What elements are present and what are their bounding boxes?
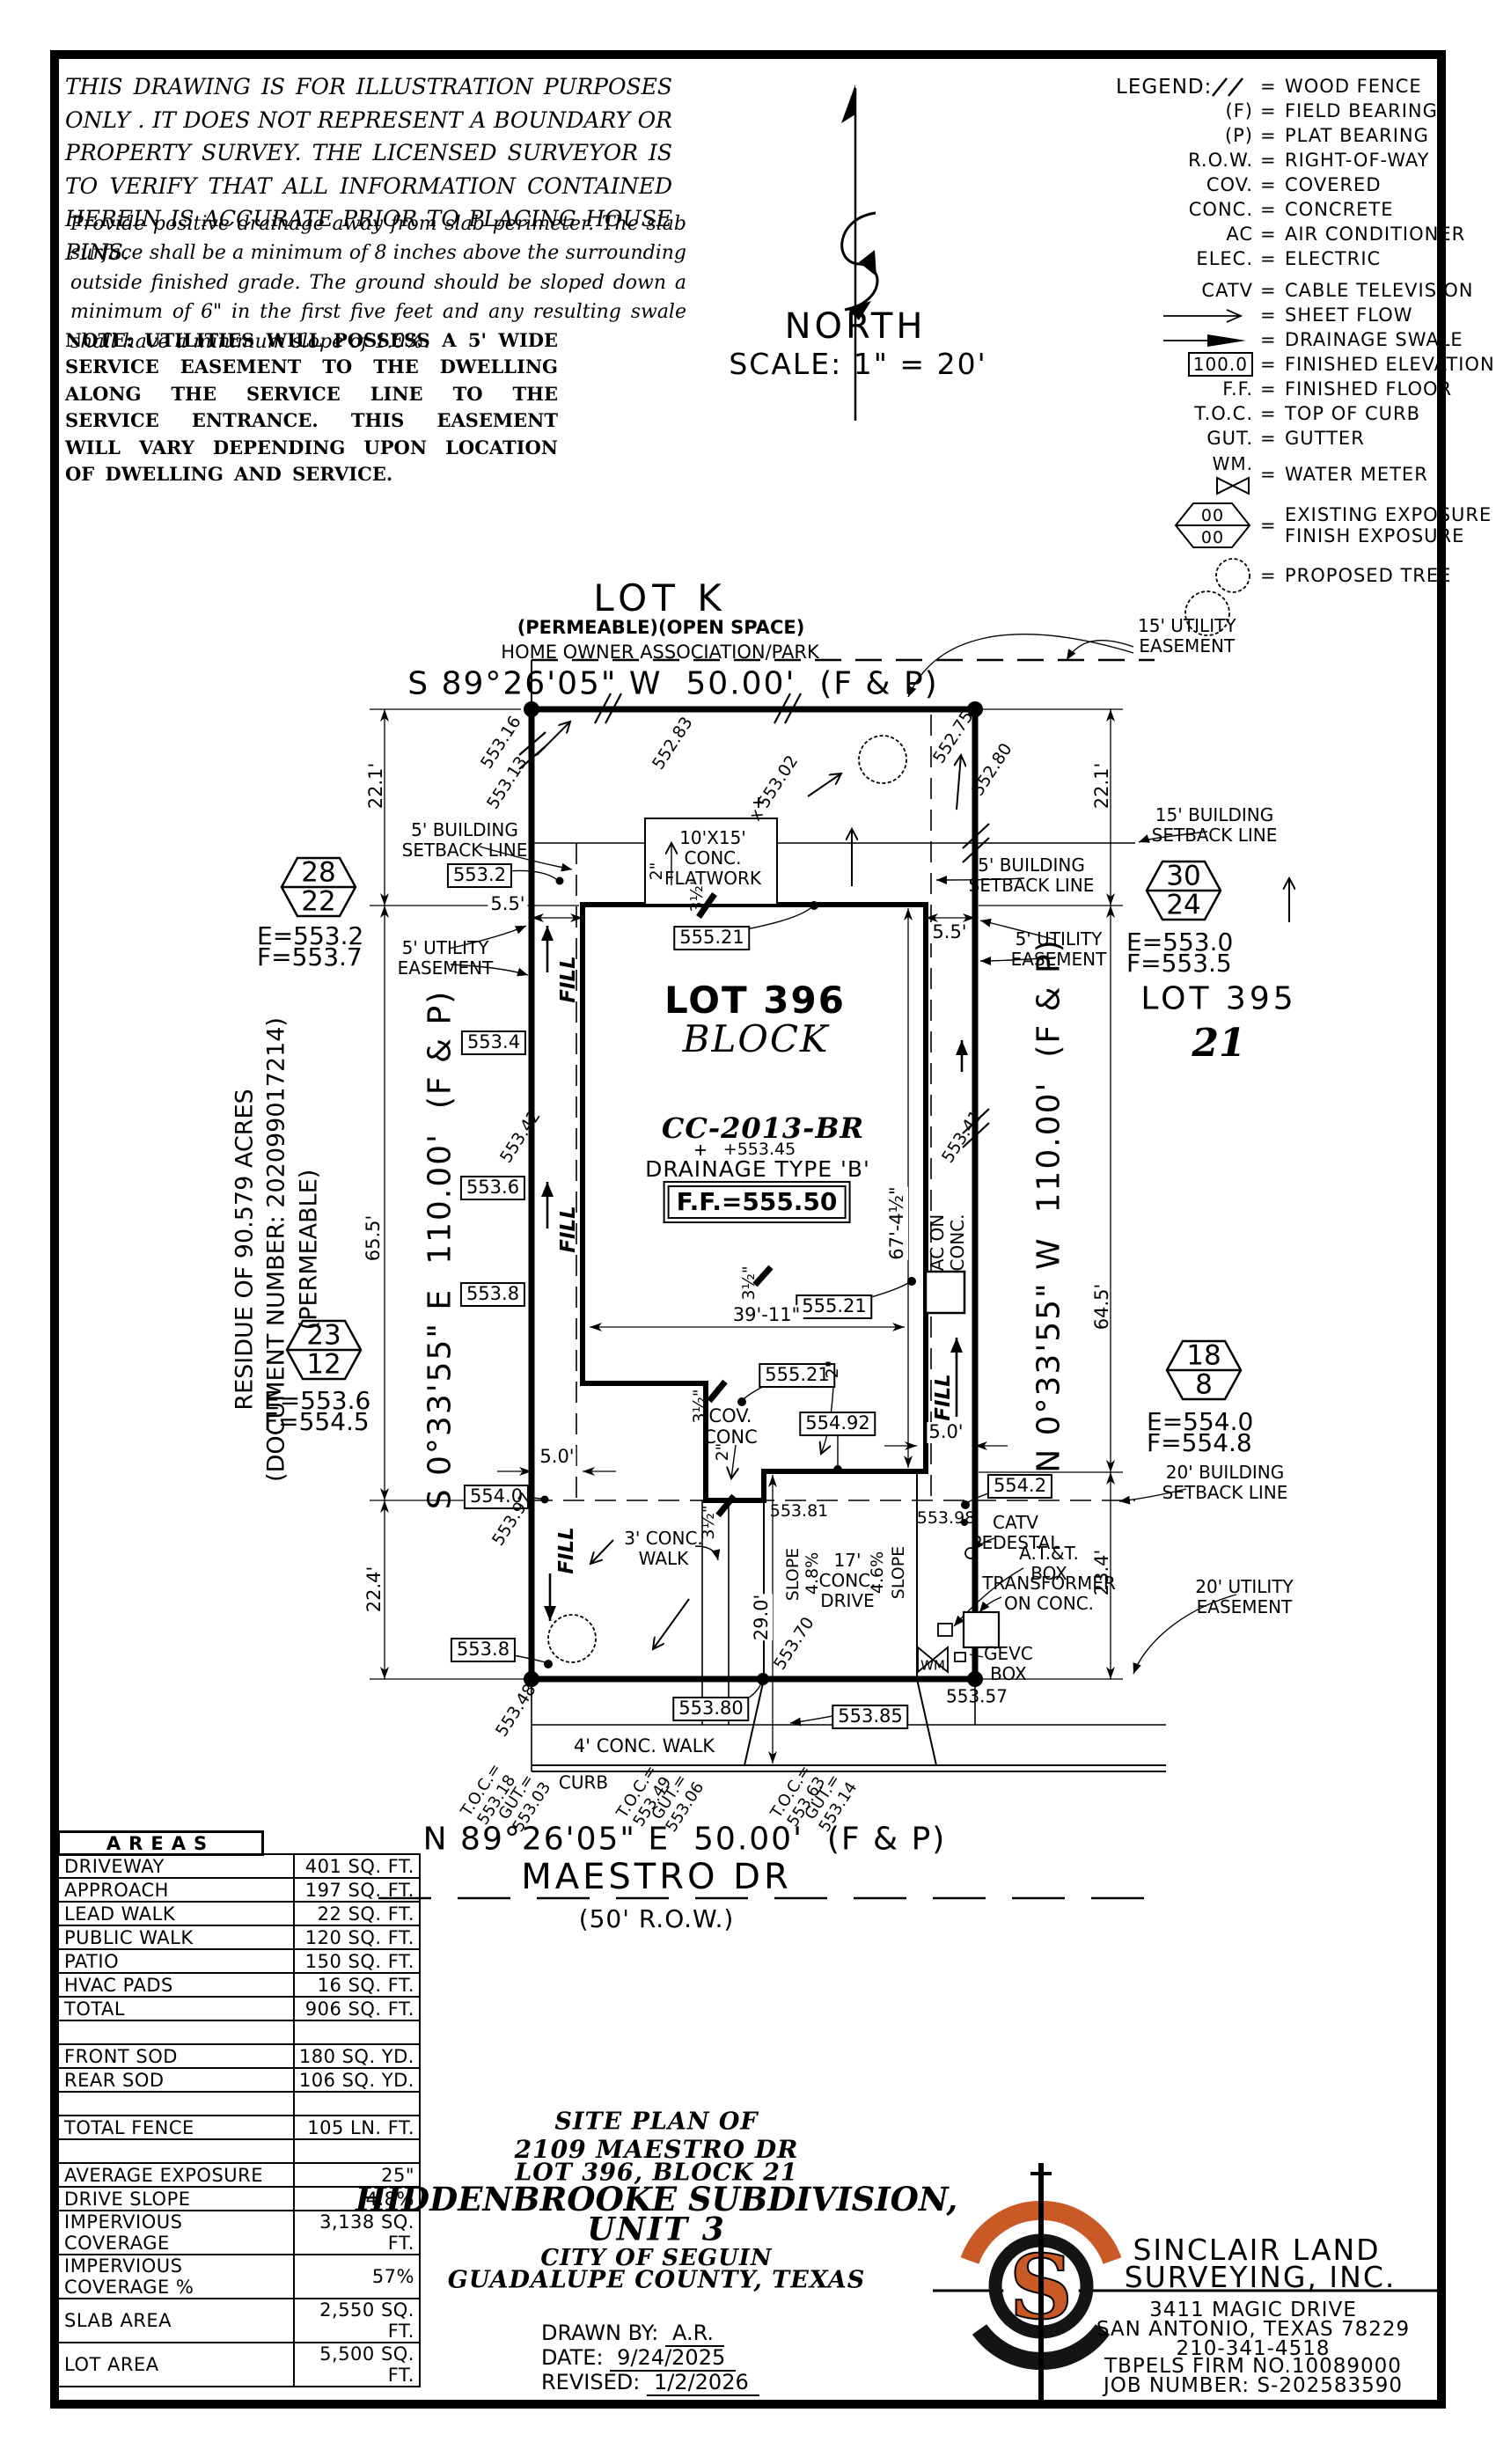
title-county: GUADALUPE COUNTY, TEXAS <box>448 2268 865 2295</box>
legend-row-sheet-flow: =SHEET FLOW <box>1151 303 1441 327</box>
date-row: DATE: 9/24/2025 <box>541 2346 736 2370</box>
dim-29-0: 29.0' <box>752 1595 773 1641</box>
table-row: TOTAL906 SQ. FT. <box>58 1997 420 2020</box>
table-row: REAR SOD106 SQ. YD. <box>58 2068 420 2092</box>
date-value: 9/24/2025 <box>610 2345 736 2372</box>
transformer-symbol <box>964 1612 999 1647</box>
east-boundary-bearing: N 0°33'55" W 110.00' (F & P) <box>1030 938 1067 1473</box>
att-box-symbol <box>938 1624 952 1636</box>
table-row: HVAC PADS16 SQ. FT. <box>58 1973 420 1997</box>
conc-walk-4-label: 4' CONC. WALK <box>574 1736 715 1757</box>
slope-label-left: SLOPE <box>784 1548 803 1601</box>
site-plan-sheet: S THIS DRAWING IS FOR ILLUSTRATION PURPO… <box>0 0 1496 2464</box>
legend-row-ac: AC=AIR CONDITIONER <box>1151 222 1441 246</box>
building-setback-20-label: 20' BUILDING SETBACK LINE <box>1162 1463 1288 1503</box>
svg-text:00: 00 <box>1201 528 1224 547</box>
ac-pad <box>926 1272 964 1313</box>
spot-box-553-4: 553.4 <box>461 1030 526 1055</box>
legend-row-gutter: GUT.=GUTTER <box>1151 426 1441 451</box>
utility-easement-5-left-label: 5' UTILITY EASEMENT <box>398 938 494 979</box>
table-row: FRONT SOD180 SQ. YD. <box>58 2044 420 2068</box>
spot-box-554-92: 554.92 <box>799 1412 876 1436</box>
table-row <box>58 2139 420 2163</box>
marker-23: 23 <box>306 1320 341 1351</box>
finished-elevation-box: 100.0 <box>1188 352 1253 377</box>
marker-18: 18 <box>1186 1340 1221 1371</box>
legend-row-covered: COV.=COVERED <box>1151 172 1441 197</box>
areas-table: DRIVEWAY401 SQ. FT. APPROACH197 SQ. FT. … <box>57 1853 421 2387</box>
lot-396-label: LOT 396 <box>664 979 846 1022</box>
sheet-flow-icon <box>1151 304 1260 326</box>
wm-label: WM <box>920 1658 945 1673</box>
table-row: TOTAL FENCE105 LN. FT. <box>58 2116 420 2139</box>
spot-box-553-80: 553.80 <box>672 1697 749 1721</box>
finished-floor-value: F.F.=555.50 <box>664 1181 851 1223</box>
proposed-tree-icon <box>1213 555 1253 596</box>
legend-row-catv: CATV=CABLE TELEVISION <box>1151 278 1441 303</box>
legend-row-finished-floor: F.F.=FINISHED FLOOR <box>1151 377 1441 401</box>
company-name-2: SURVEYING, INC. <box>1125 2261 1397 2294</box>
dim-5-5-left: 5.5' <box>488 894 527 915</box>
south-boundary-bearing: N 89°26'05" E 50.00' (F & P) <box>423 1821 947 1857</box>
dim-65-5: 65.5' <box>363 1215 385 1262</box>
exposure-hexagon-icon: 00 00 <box>1172 500 1253 551</box>
fill-label-w1: FILL <box>557 956 580 1003</box>
title-site-plan-of: SITE PLAN OF <box>554 2109 758 2137</box>
gevc-box-symbol <box>955 1653 965 1661</box>
dim-5-0-right: 5.0' <box>927 1422 964 1443</box>
drainage-swale-icon <box>1151 329 1260 350</box>
table-row: LEAD WALK22 SQ. FT. <box>58 1902 420 1925</box>
lot-k-permeable-label: (PERMEABLE)(OPEN SPACE) <box>517 618 805 639</box>
spot-box-553-85: 553.85 <box>832 1705 908 1729</box>
building-setback-5-left-label: 5' BUILDING SETBACK LINE <box>402 820 528 861</box>
legend-row-top-of-curb: T.O.C.=TOP OF CURB <box>1151 401 1441 426</box>
revised-label: REVISED: <box>541 2370 640 2394</box>
gevc-box-label: GEVC BOX <box>984 1644 1033 1684</box>
spot-553-98: 553.98 <box>917 1509 975 1529</box>
marker-8: 8 <box>1195 1369 1213 1400</box>
fill-label-w2: FILL <box>557 1206 580 1253</box>
conc-drive-label: 17' CONC. DRIVE <box>819 1551 876 1610</box>
water-meter-icon <box>1214 476 1252 495</box>
legend-row-field-bearing: (F)=FIELD BEARING <box>1151 99 1441 123</box>
spot-box-553-8-sw: 553.8 <box>451 1638 516 1662</box>
spot-553-57: 553.57 <box>946 1687 1008 1707</box>
dim-2in-c: 2" <box>824 1360 843 1379</box>
table-row <box>58 2020 420 2044</box>
curb-label: CURB <box>559 1773 608 1793</box>
svg-text:00: 00 <box>1201 506 1224 525</box>
legend-row-exposure: 00 00 =EXISTING EXPOSURE FINISH EXPOSURE <box>1151 498 1441 553</box>
legend-row-proposed-tree: =PROPOSED TREE <box>1151 553 1441 598</box>
title-unit: UNIT 3 <box>587 2211 726 2248</box>
marker-23-finish: F=554.5 <box>264 1408 370 1436</box>
company-job-number: JOB NUMBER: S-202583590 <box>1104 2374 1403 2397</box>
dim-67-4: 67'-4½" <box>887 1186 908 1259</box>
marker-28-finish: F=553.7 <box>257 943 363 972</box>
ac-on-conc-label: AC ON CONC. <box>928 1214 968 1272</box>
lot-395-label: LOT 395 <box>1140 980 1296 1016</box>
legend-row-finished-elevation: 100.0 =FINISHED ELEVATION <box>1151 352 1441 377</box>
fill-label-e1: FILL <box>932 1374 955 1421</box>
marker-28: 28 <box>301 857 335 888</box>
west-boundary-bearing: S 0°33'55" E 110.00' (F & P) <box>422 990 458 1510</box>
dim-5-0-left: 5.0' <box>538 1447 576 1468</box>
utility-easement-15-label: 15' UTILITY EASEMENT <box>1138 616 1236 656</box>
dim-39-11: 39'-11" <box>730 1305 803 1326</box>
dim-22-1-left: 22.1' <box>366 763 387 810</box>
spot-box-555-21-a: 555.21 <box>673 926 750 950</box>
block-label: BLOCK <box>683 1018 830 1060</box>
drawn-by-row: DRAWN BY: A.R. <box>541 2321 724 2345</box>
street-name: MAESTRO DR <box>521 1858 792 1898</box>
table-row: IMPERVIOUS COVERAGE %57% <box>58 2255 420 2299</box>
building-setback-5-right-label: 5' BUILDING SETBACK LINE <box>969 855 1095 896</box>
utility-easement-5-right-label: 5' UTILITY EASEMENT <box>1011 929 1107 970</box>
flatwork-label: 10'X15' CONC. FLATWORK <box>664 828 761 888</box>
legend-row-drainage-swale: =DRAINAGE SWALE <box>1151 327 1441 352</box>
date-label: DATE: <box>541 2345 604 2370</box>
table-row: APPROACH197 SQ. FT. <box>58 1878 420 1902</box>
covered-concrete-label: COV. CONC <box>703 1406 758 1448</box>
legend-row-plat-bearing: (P)=PLAT BEARING <box>1151 123 1441 148</box>
table-row: PUBLIC WALK120 SQ. FT. <box>58 1925 420 1949</box>
drawn-by-value: A.R. <box>665 2321 724 2347</box>
legend: =WOOD FENCE (F)=FIELD BEARING (P)=PLAT B… <box>1151 74 1441 598</box>
legend-row-electric: ELEC.=ELECTRIC <box>1151 246 1441 271</box>
dim-22-1-right: 22.1' <box>1092 763 1113 810</box>
lot-395-block-number: 21 <box>1192 1022 1245 1066</box>
utility-easement-20-label: 20' UTILITY EASEMENT <box>1195 1577 1294 1617</box>
areas-table-title: AREAS <box>57 1830 264 1856</box>
spot-553-81: 553.81 <box>770 1502 828 1522</box>
legend-row-row: R.O.W.=RIGHT-OF-WAY <box>1151 148 1441 172</box>
marker-30: 30 <box>1166 861 1200 891</box>
spot-box-553-8: 553.8 <box>460 1282 525 1307</box>
spot-box-553-6: 553.6 <box>460 1176 525 1200</box>
north-boundary-bearing: S 89°26'05" W 50.00' (F & P) <box>407 665 938 701</box>
marker-24: 24 <box>1166 890 1200 920</box>
wood-fence-icon <box>1151 76 1260 98</box>
marker-22: 22 <box>301 886 335 917</box>
revised-row: REVISED: 1/2/2026 <box>541 2371 759 2394</box>
lot-k-hoa-label: HOME OWNER ASSOCIATION/PARK <box>501 642 818 664</box>
transformer-label: TRANSFORMER ON CONC. <box>982 1573 1116 1614</box>
dim-5-5-right: 5.5' <box>929 922 969 943</box>
north-label: NORTH <box>785 307 927 348</box>
table-row <box>58 2092 420 2116</box>
legend-row-water-meter: WM. =WATER METER <box>1151 451 1441 498</box>
lot-k-label: LOT K <box>593 577 727 620</box>
table-row: SLAB AREA2,550 SQ. FT. <box>58 2299 420 2343</box>
dim-64-5: 64.5' <box>1092 1284 1113 1331</box>
spot-box-554-2: 554.2 <box>987 1474 1052 1499</box>
scale-label: SCALE: 1" = 20' <box>729 348 986 381</box>
table-row: DRIVEWAY401 SQ. FT. <box>58 1854 420 1878</box>
drawn-by-label: DRAWN BY: <box>541 2321 658 2345</box>
dim-22-4: 22.4' <box>364 1566 385 1613</box>
revised-value: 1/2/2026 <box>647 2370 759 2396</box>
fill-label-w3: FILL <box>555 1527 578 1574</box>
spot-box-553-2: 553.2 <box>447 863 512 888</box>
utility-easement-note: NOTE: UTILITIES WILL POSSESS A 5' WIDE S… <box>65 327 558 488</box>
conc-walk-3-label: 3' CONC. WALK <box>624 1529 703 1569</box>
street-row-label: (50' R.O.W.) <box>579 1905 735 1933</box>
drainage-type-label: DRAINAGE TYPE 'B' <box>645 1157 870 1183</box>
table-row: PATIO150 SQ. FT. <box>58 1949 420 1973</box>
building-setback-15-label: 15' BUILDING SETBACK LINE <box>1152 805 1278 846</box>
legend-row-wood-fence: =WOOD FENCE <box>1151 74 1441 99</box>
marker-12: 12 <box>306 1349 341 1380</box>
slope-label-right: SLOPE <box>890 1546 909 1599</box>
marker-18-finish: F=554.8 <box>1147 1429 1252 1457</box>
dim-3-5in-b: 3½" <box>740 1265 759 1300</box>
spot-box-555-21-b: 555.21 <box>796 1294 872 1319</box>
legend-row-concrete: CONC.=CONCRETE <box>1151 197 1441 222</box>
table-row: LOT AREA5,500 SQ. FT. <box>58 2343 420 2387</box>
marker-30-finish: F=553.5 <box>1126 950 1232 978</box>
